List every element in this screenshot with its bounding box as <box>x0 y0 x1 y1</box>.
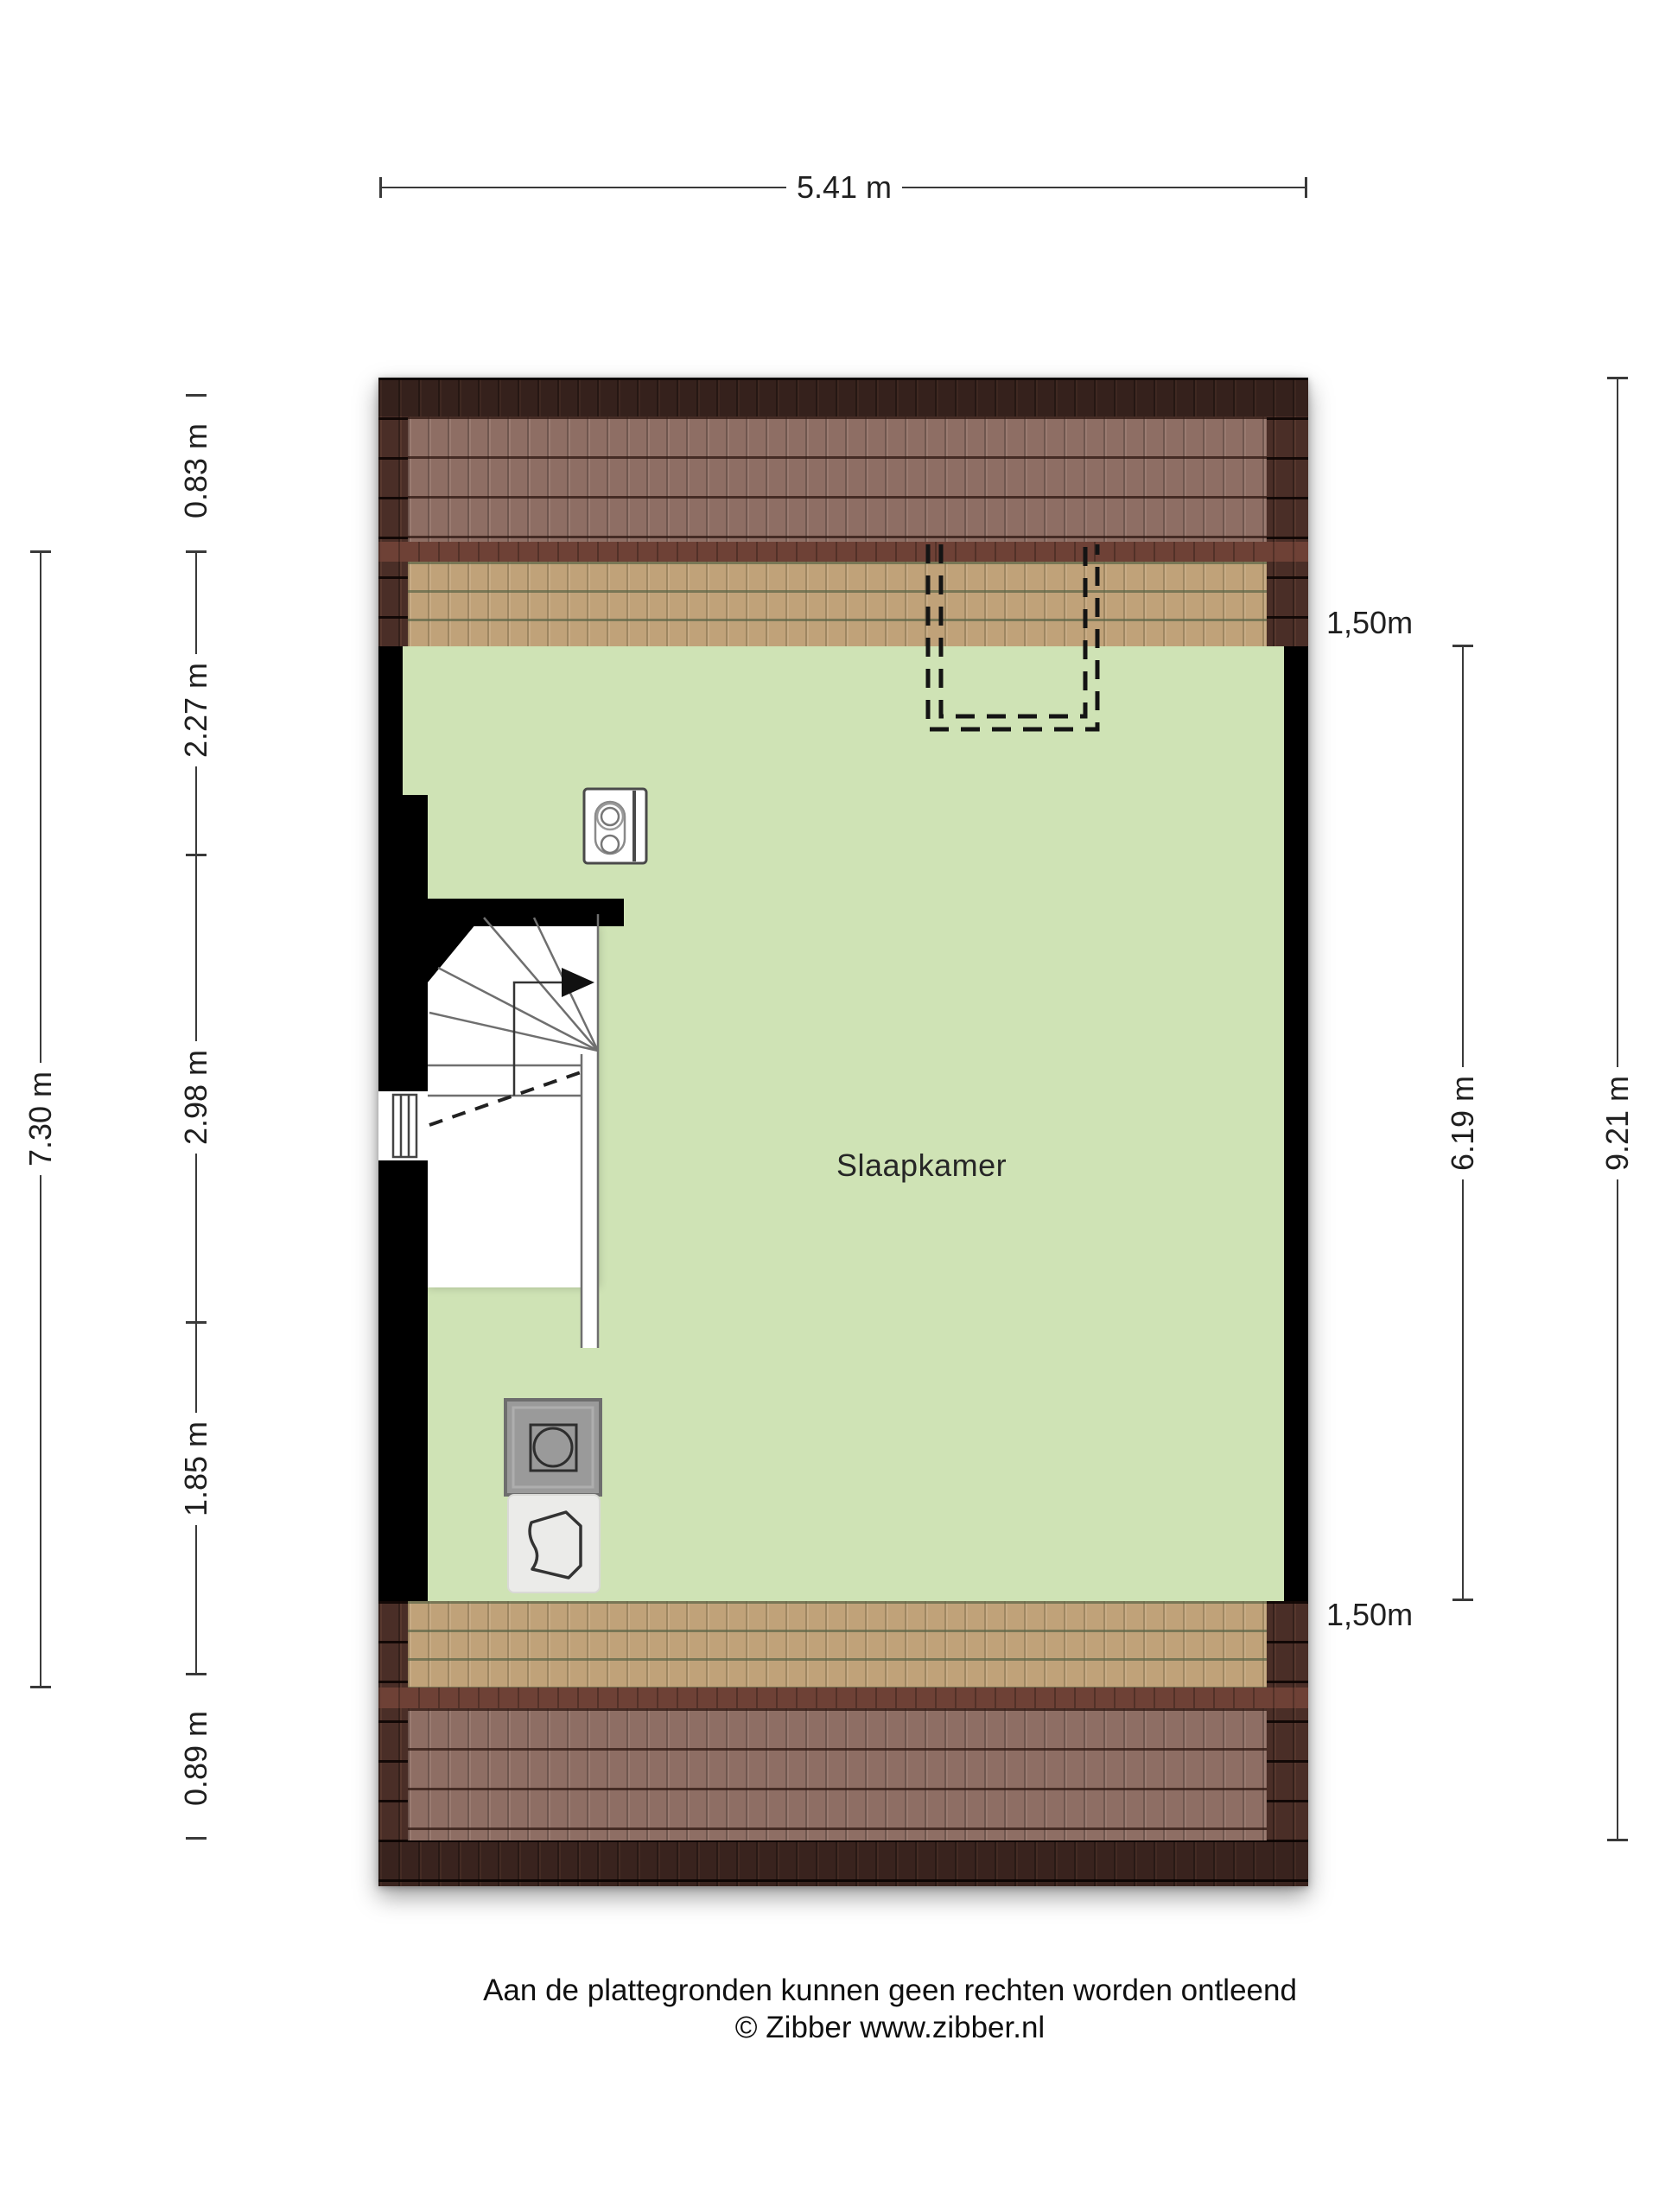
dim-left-tick-0 <box>186 394 207 397</box>
stair-direction-arrow-icon <box>562 968 594 997</box>
floorplan-canvas: 5.41 m 7.30 m 0.83 m 2.27 m 2.98 m 1.85 … <box>0 0 1659 2212</box>
room-label: Slaapkamer <box>836 1147 1007 1184</box>
washing-machine-icon <box>505 1400 601 1495</box>
stair-corner-wedge <box>428 914 484 982</box>
dormer-outline <box>928 544 1097 729</box>
footer-disclaimer: Aan de plattegronden kunnen geen rechten… <box>483 1972 1297 2009</box>
floorplan-body <box>378 378 1308 1886</box>
plan-vector-details <box>378 378 1308 1886</box>
dim-left-tick-5 <box>186 1837 207 1840</box>
mv-unit-icon <box>584 789 646 863</box>
dim-left-tick-4 <box>186 1673 207 1675</box>
footer: Aan de plattegronden kunnen geen rechten… <box>483 1972 1297 2046</box>
window-glazing-icon <box>393 1095 416 1157</box>
headroom-label-bottom: 1,50m <box>1326 1597 1413 1633</box>
footer-copyright: © Zibber www.zibber.nl <box>483 2009 1297 2046</box>
stair-headroom-dashed-line <box>429 1071 583 1125</box>
headroom-label-top: 1,50m <box>1326 605 1413 641</box>
dim-top-label: 5.41 m <box>786 168 902 207</box>
laundry-basket-icon <box>508 1495 600 1592</box>
